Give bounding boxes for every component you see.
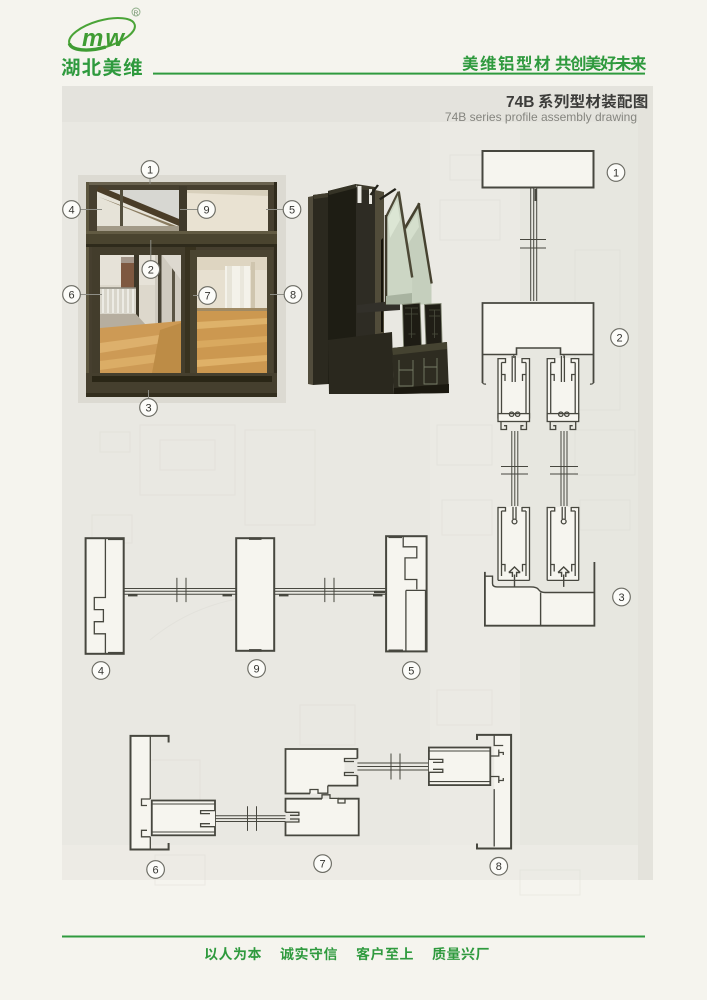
svg-text:3: 3 bbox=[618, 592, 624, 604]
svg-text:4: 4 bbox=[68, 204, 74, 216]
svg-text:5: 5 bbox=[289, 204, 295, 216]
svg-text:2: 2 bbox=[616, 332, 622, 344]
svg-text:6: 6 bbox=[153, 864, 159, 876]
svg-text:1: 1 bbox=[147, 164, 153, 176]
svg-text:8: 8 bbox=[496, 861, 502, 873]
svg-text:2: 2 bbox=[148, 264, 154, 276]
svg-text:8: 8 bbox=[290, 289, 296, 301]
svg-text:9: 9 bbox=[203, 204, 209, 216]
svg-text:74B: 74B bbox=[506, 94, 534, 111]
svg-text:6: 6 bbox=[68, 289, 74, 301]
svg-text:7: 7 bbox=[204, 290, 210, 302]
svg-text:R: R bbox=[134, 10, 139, 17]
svg-text:1: 1 bbox=[613, 167, 619, 179]
svg-text:7: 7 bbox=[320, 859, 326, 871]
svg-text:5: 5 bbox=[408, 665, 414, 677]
svg-text:3: 3 bbox=[145, 402, 151, 414]
svg-text:4: 4 bbox=[98, 665, 104, 677]
svg-text:9: 9 bbox=[254, 663, 260, 675]
svg-text:74B series profile assembly dr: 74B series profile assembly drawing bbox=[445, 110, 637, 124]
